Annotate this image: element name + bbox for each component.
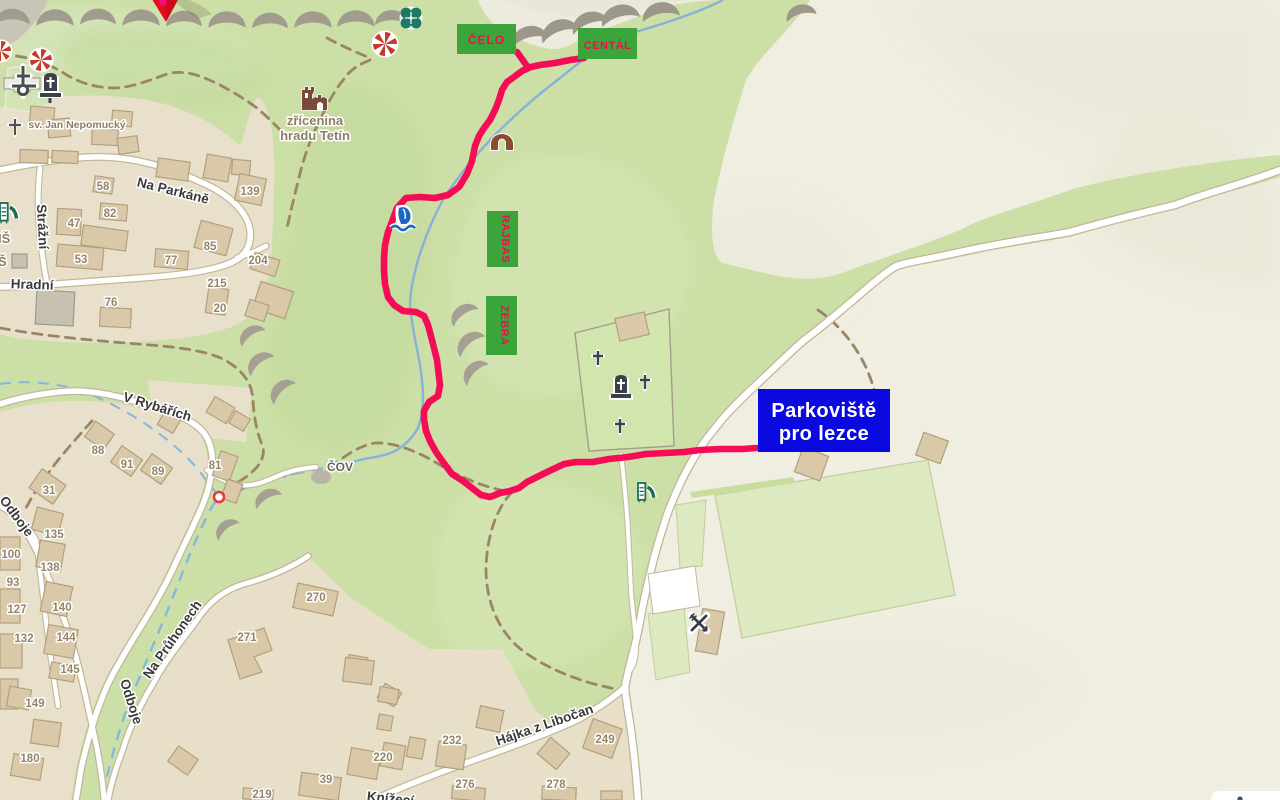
svg-text:ČELO: ČELO <box>468 32 505 47</box>
svg-text:RAJBAS: RAJBAS <box>499 215 511 263</box>
svg-text:180: 180 <box>20 753 39 765</box>
svg-text:132: 132 <box>14 633 33 645</box>
svg-text:77: 77 <box>165 255 178 267</box>
svg-text:145: 145 <box>60 664 80 676</box>
svg-text:139: 139 <box>240 186 259 198</box>
svg-text:232: 232 <box>442 735 461 747</box>
svg-text:140: 140 <box>52 602 71 614</box>
svg-text:220: 220 <box>373 752 392 764</box>
svg-text:58: 58 <box>97 181 110 193</box>
svg-text:204: 204 <box>248 255 268 267</box>
svg-text:20: 20 <box>214 303 227 315</box>
svg-text:249: 249 <box>595 734 614 746</box>
svg-text:Hradní: Hradní <box>11 276 56 293</box>
svg-text:Parkoviště: Parkoviště <box>771 400 876 422</box>
svg-text:135: 135 <box>44 529 64 541</box>
svg-text:zřícenina: zřícenina <box>287 113 344 128</box>
svg-text:91: 91 <box>121 459 134 471</box>
svg-text:127: 127 <box>7 604 26 616</box>
svg-text:144: 144 <box>56 632 76 644</box>
svg-text:31: 31 <box>43 485 56 497</box>
svg-text:270: 270 <box>306 592 325 604</box>
svg-text:89: 89 <box>152 466 165 478</box>
svg-text:53: 53 <box>75 254 88 266</box>
svg-text:Š: Š <box>0 254 7 269</box>
svg-text:149: 149 <box>25 698 44 710</box>
svg-text:276: 276 <box>455 779 474 791</box>
svg-text:pro lezce: pro lezce <box>779 423 869 445</box>
svg-text:47: 47 <box>68 218 81 230</box>
svg-text:hradu Tetín: hradu Tetín <box>280 128 350 143</box>
svg-text:271: 271 <box>237 632 257 644</box>
svg-text:ČOV: ČOV <box>327 459 353 474</box>
svg-text:82: 82 <box>104 208 117 220</box>
svg-text:93: 93 <box>7 577 20 589</box>
svg-text:39: 39 <box>320 774 333 786</box>
svg-text:IŠ: IŠ <box>0 231 11 246</box>
svg-text:85: 85 <box>204 241 217 253</box>
svg-text:278: 278 <box>546 779 566 791</box>
svg-text:CENTÁL: CENTÁL <box>584 39 632 52</box>
svg-text:81: 81 <box>209 460 222 472</box>
svg-text:Strážní: Strážní <box>34 204 51 251</box>
svg-text:138: 138 <box>40 562 60 574</box>
svg-text:100: 100 <box>1 549 20 561</box>
svg-text:88: 88 <box>92 445 105 457</box>
svg-text:ZEBRA: ZEBRA <box>498 305 510 345</box>
svg-text:215: 215 <box>207 278 227 290</box>
svg-text:219: 219 <box>252 789 271 800</box>
svg-text:76: 76 <box>105 297 118 309</box>
svg-text:sv. Jan Nepomucký: sv. Jan Nepomucký <box>28 119 125 131</box>
